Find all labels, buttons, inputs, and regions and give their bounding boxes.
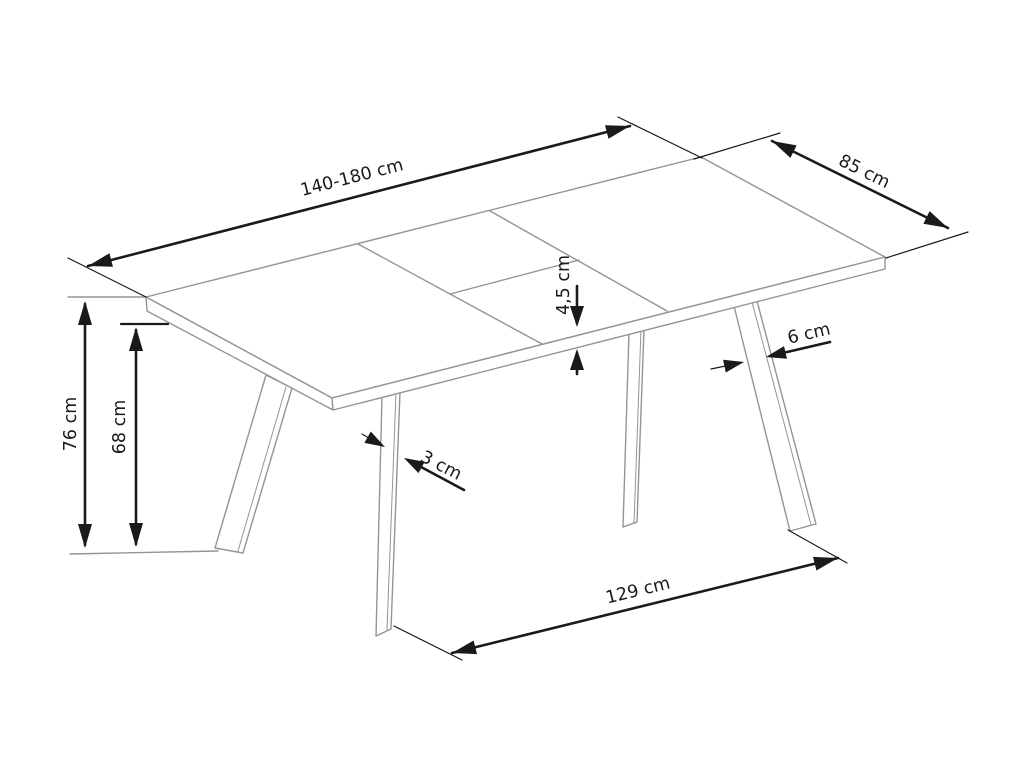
dimension-annotations: 140-180 cm 85 cm 4,5 cm 6 cm [61,117,968,660]
leg-span-arrowhead-right [813,557,838,571]
clearance-height-label: 68 cm [110,400,130,455]
clearance-arrowhead-bottom [129,523,143,547]
table-dimension-diagram: 140-180 cm 85 cm 4,5 cm 6 cm [0,0,1024,768]
dimension-height: 76 cm [61,301,92,548]
table-leg-back [623,329,644,527]
table-drawing [68,157,885,636]
height-arrowhead-top [78,301,92,325]
thickness-arrowhead-up [570,349,584,370]
dimension-leg-span: 129 cm [394,530,847,660]
leg-span-label: 129 cm [604,573,673,608]
width-extension-right [886,232,968,258]
width-arrowhead-bottom [923,211,948,228]
dimension-clearance-height: 68 cm [110,324,168,547]
length-arrowhead-right [605,125,630,139]
leg-span-arrowhead-left [452,641,477,655]
table-leg-left [215,375,292,553]
clearance-arrowhead-top [129,327,143,351]
height-arrowhead-bottom [78,524,92,548]
leg-span-extension-left [394,626,462,660]
diagram-canvas: 140-180 cm 85 cm 4,5 cm 6 cm [0,0,1024,768]
width-arrowhead-top [772,141,797,158]
length-extension-right [618,117,702,158]
dimension-leg-thickness: 3 cm [362,432,465,491]
top-thickness-label: 4,5 cm [554,255,574,315]
height-label: 76 cm [61,397,81,452]
leg-width-arrowhead-left [723,360,744,373]
width-extension-left [694,133,780,159]
length-arrowhead-left [88,253,113,267]
leg-span-dimension-line [452,558,838,653]
length-label: 140-180 cm [298,155,405,201]
floor-level-line [70,551,218,554]
